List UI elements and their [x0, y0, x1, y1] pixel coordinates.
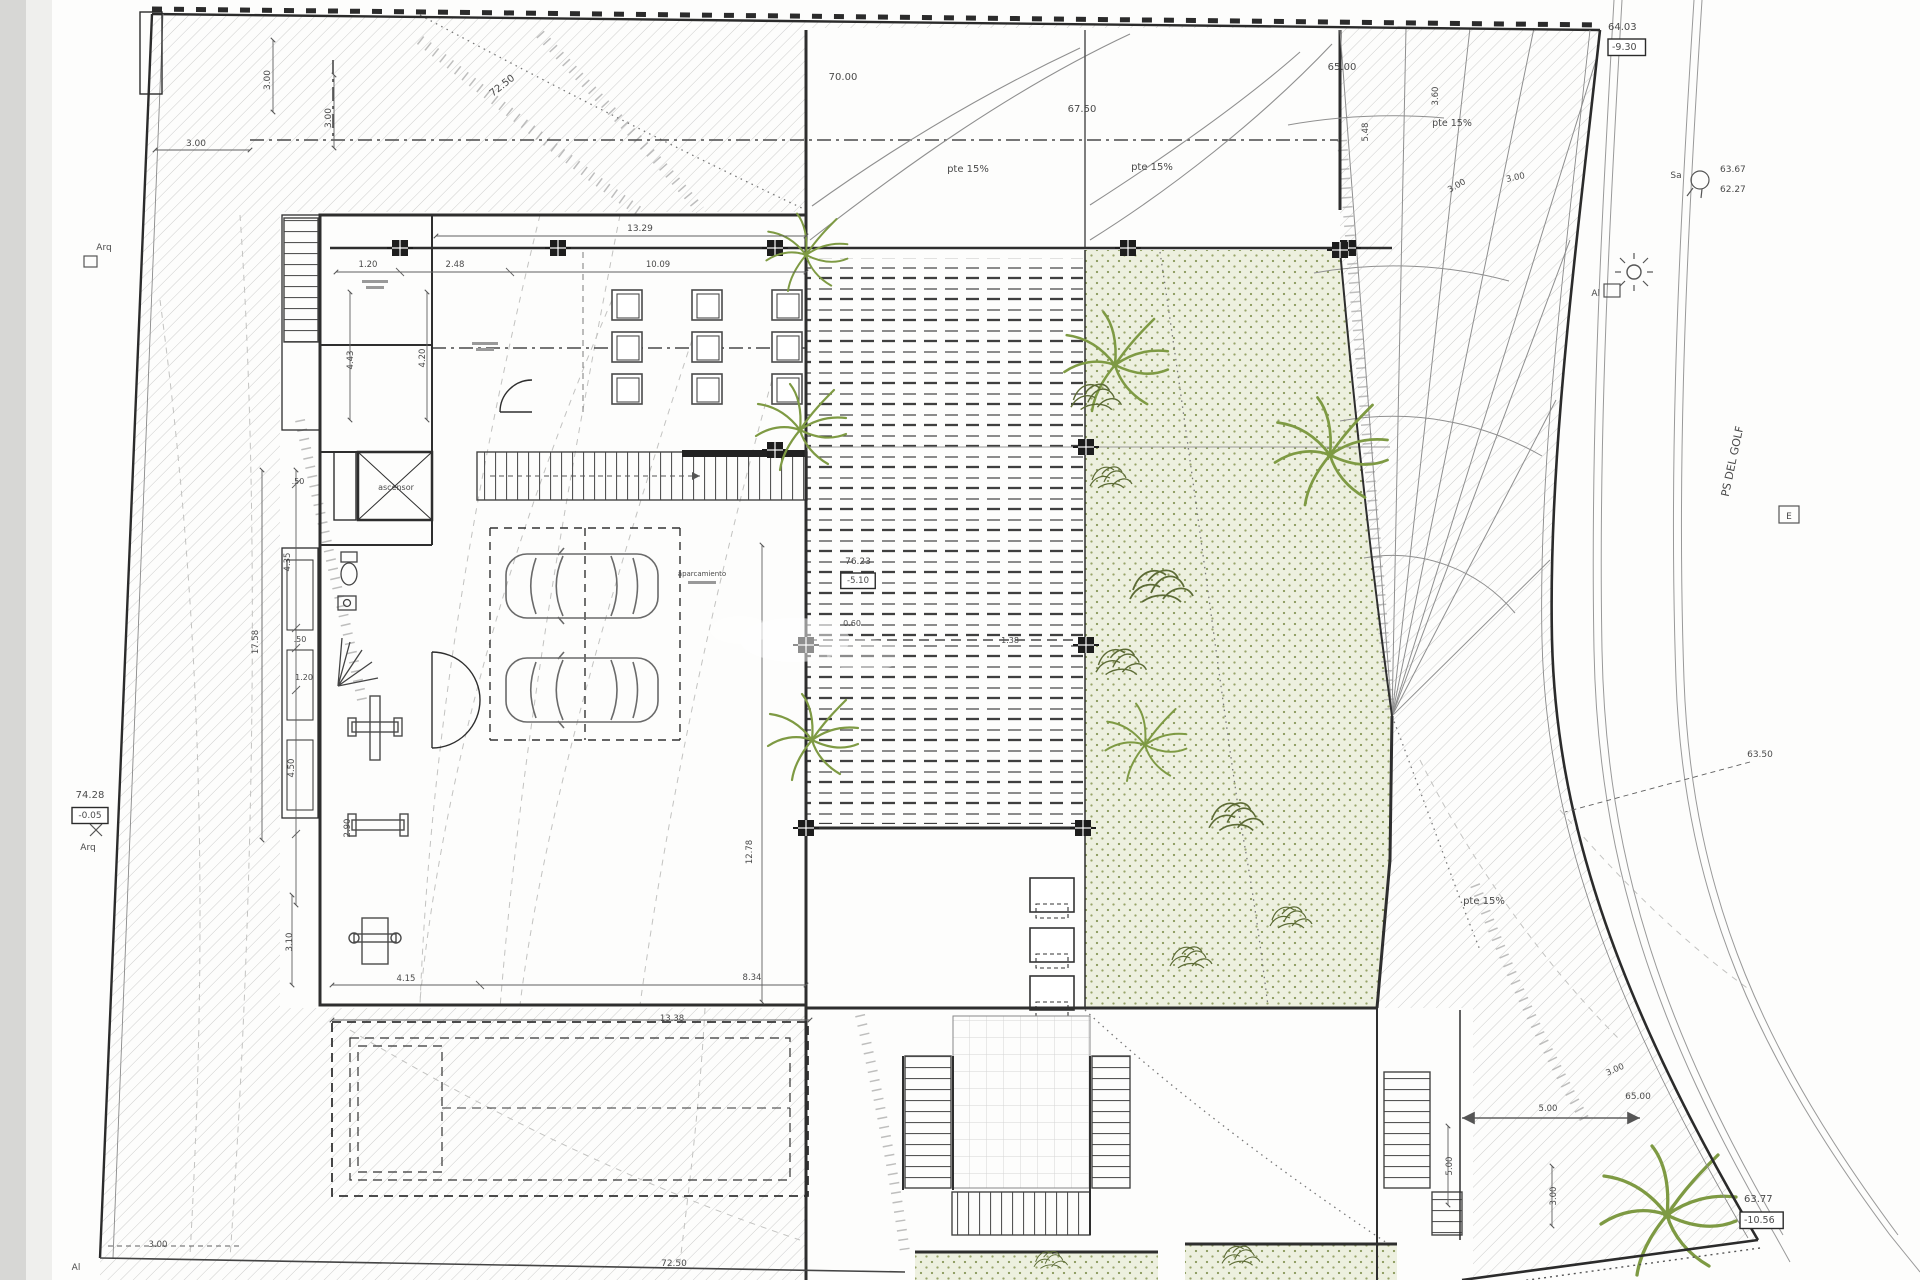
plan-label-0: 3.00 [186, 139, 206, 149]
plan-label-54: 1.38 [1001, 636, 1019, 645]
plan-label-61: Al [72, 1263, 81, 1273]
plan-label-40: .50 [292, 477, 305, 486]
plan-label-21: E [1786, 512, 1792, 522]
plan-label-6: 67.50 [1068, 104, 1097, 115]
site-plan-drawing: 3.003.003.0072.5070.00pte 15%67.50pte 15… [0, 0, 1920, 1280]
terrace-decking [807, 258, 1083, 824]
plan-label-18: 62.27 [1720, 185, 1746, 195]
plan-label-30: -10.56 [1744, 1215, 1775, 1226]
plan-label-32: 1.20 [359, 260, 378, 270]
plan-label-9: 5.48 [1361, 123, 1371, 142]
plan-label-15: -9.30 [1612, 42, 1637, 53]
plan-label-11: 3.60 [1431, 87, 1441, 106]
plan-label-56: 4.15 [397, 974, 416, 984]
plan-label-17: 63.67 [1720, 165, 1746, 175]
plan-label-35: Arq [96, 243, 111, 253]
plan-label-27: 5.00 [1445, 1157, 1455, 1176]
plan-label-41: 4.35 [283, 553, 293, 572]
plan-label-60: 3.00 [149, 1240, 168, 1250]
plan-label-16: Sa [1670, 171, 1681, 181]
plan-label-49: ascensor [378, 483, 415, 492]
plan-label-53: 0.60 [843, 619, 861, 628]
plan-label-42: .50 [294, 635, 307, 644]
plan-label-58: 13.38 [660, 1014, 684, 1024]
plan-label-50: aparcamiento [678, 570, 726, 578]
plan-label-47: 4.43 [346, 351, 356, 370]
page-margin-strip [0, 0, 26, 1280]
plan-label-55: 12.78 [745, 840, 755, 864]
plan-label-25: 65.00 [1625, 1092, 1651, 1102]
plan-label-29: 63.77 [1744, 1194, 1773, 1205]
plan-label-44: 4.50 [287, 759, 297, 778]
plan-label-34: 10.09 [646, 260, 670, 270]
plan-label-19: Al [1591, 289, 1600, 299]
plan-label-31: 13.29 [627, 224, 653, 234]
plan-label-48: 4.20 [418, 349, 428, 368]
plan-label-28: 3.00 [1549, 1187, 1559, 1206]
plan-label-59: 72.50 [661, 1259, 687, 1269]
plan-label-57: 8.34 [743, 973, 762, 983]
plan-label-46: 3.10 [285, 933, 295, 952]
page-margin-strip2 [26, 0, 52, 1280]
plan-label-36: 74.28 [76, 790, 105, 801]
plan-label-7: pte 15% [1131, 162, 1173, 173]
plan-label-5: pte 15% [947, 164, 989, 175]
plan-label-51: 76.23 [845, 557, 871, 567]
plan-label-43: 1.20 [295, 673, 313, 682]
terrace-chairs [612, 290, 802, 404]
plan-label-8: 65.00 [1328, 62, 1357, 73]
lightwell-grid [953, 1016, 1090, 1188]
plan-label-37: -0.05 [78, 811, 101, 821]
plan-label-2: 3.00 [324, 108, 334, 128]
stepping-pads [1030, 878, 1074, 1016]
plan-label-10: pte 15% [1432, 118, 1472, 129]
plan-label-1: 3.00 [263, 70, 273, 90]
plan-label-38: Arq [80, 843, 95, 853]
site-plan-page: 3.003.003.0072.5070.00pte 15%67.50pte 15… [0, 0, 1920, 1280]
plan-label-33: 2.48 [446, 260, 465, 270]
plan-label-14: 64.03 [1608, 22, 1637, 33]
plan-label-45: 2.90 [343, 819, 353, 838]
plan-label-26: 5.00 [1539, 1104, 1558, 1114]
plan-label-39: 17.58 [251, 630, 261, 654]
plan-label-52: -5.10 [847, 576, 869, 586]
plan-label-23: pte 15% [1463, 896, 1505, 907]
plan-label-22: 63.50 [1747, 750, 1773, 760]
plan-label-4: 70.00 [829, 72, 858, 83]
